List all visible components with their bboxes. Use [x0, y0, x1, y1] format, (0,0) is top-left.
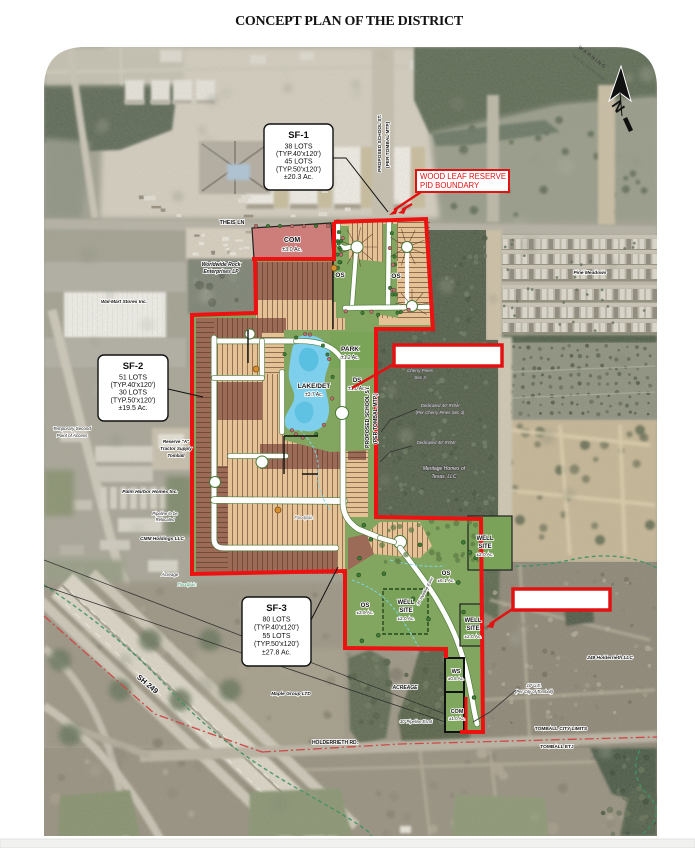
svg-text:±1.0 Ac.: ±1.0 Ac. [449, 716, 465, 721]
svg-text:Tomball: Tomball [167, 453, 185, 458]
svg-text:Floodplain: Floodplain [294, 515, 314, 520]
svg-text:SF-2: SF-2 [123, 361, 144, 372]
svg-text:(PER TOMBAL MTP): (PER TOMBAL MTP) [385, 121, 391, 168]
svg-text:(PER TOMBAL MTP.): (PER TOMBAL MTP.) [373, 393, 379, 444]
svg-text:10' U.E.: 10' U.E. [527, 683, 542, 688]
svg-text:WOOD LEAF RESERVE: WOOD LEAF RESERVE [420, 172, 506, 181]
svg-text:(TYP.50'x120'): (TYP.50'x120') [276, 166, 321, 173]
svg-text:Reserve "A": Reserve "A" [163, 439, 190, 444]
svg-text:Relocated: Relocated [156, 517, 176, 522]
svg-text:±2.0 Ac.: ±2.0 Ac. [476, 552, 493, 558]
svg-text:OS: OS [361, 603, 370, 609]
svg-text:OS: OS [442, 571, 451, 577]
svg-text:LAKE/DET: LAKE/DET [298, 383, 331, 390]
svg-text:SITE: SITE [478, 544, 491, 550]
svg-text:PROPOSED SCHOOL ST.: PROPOSED SCHOOL ST. [365, 386, 371, 448]
svg-text:WELL: WELL [398, 600, 415, 606]
svg-text:30 LOTS: 30 LOTS [119, 390, 147, 397]
svg-text:±3.9 Ac.: ±3.9 Ac. [356, 610, 373, 616]
svg-text:PARK: PARK [341, 346, 359, 353]
svg-text:COM: COM [284, 237, 301, 244]
svg-text:SITE: SITE [399, 608, 412, 614]
svg-text:(TYP.40'x120'): (TYP.40'x120') [254, 625, 299, 632]
svg-text:Tractor Supply: Tractor Supply [160, 446, 192, 451]
svg-text:±1.0 Ac.: ±1.0 Ac. [348, 386, 366, 392]
svg-text:ACREAGE: ACREAGE [391, 685, 418, 691]
svg-text:THEIS LN: THEIS LN [219, 220, 244, 226]
svg-text:±3.0 Ac.: ±3.0 Ac. [282, 247, 302, 253]
svg-text:OS: OS [335, 272, 345, 279]
svg-text:SITE: SITE [466, 626, 479, 632]
svg-text:Floodplain: Floodplain [177, 582, 197, 587]
svg-text:±2.0 Ac.: ±2.0 Ac. [397, 616, 414, 622]
svg-text:±2.0 Ac.: ±2.0 Ac. [464, 634, 481, 640]
svg-text:SF-3: SF-3 [266, 603, 287, 614]
svg-text:(TYP.40'x120'): (TYP.40'x120') [276, 151, 321, 158]
svg-text:45 LOTS: 45 LOTS [284, 159, 312, 166]
svg-text:CMM Holdings LLC: CMM Holdings LLC [140, 536, 184, 542]
svg-text:Pine Meadows: Pine Meadows [573, 270, 606, 276]
svg-text:Palm Harbor Homes Inc.: Palm Harbor Homes Inc. [122, 489, 177, 495]
svg-text:249 Holderrieth LLC: 249 Holderrieth LLC [586, 655, 633, 661]
svg-text:51 LOTS: 51 LOTS [119, 375, 147, 382]
svg-text:±3.7 Ac.: ±3.7 Ac. [305, 392, 323, 398]
svg-text:(TYP.40'x120'): (TYP.40'x120') [111, 382, 156, 389]
svg-text:(TYP.50'x120'): (TYP.50'x120') [254, 641, 299, 648]
svg-text:Worldwide Rock: Worldwide Rock [202, 262, 241, 268]
svg-text:±20.3 Ac.: ±20.3 Ac. [284, 174, 313, 181]
svg-text:PROPOSED SCHOOL ST.: PROPOSED SCHOOL ST. [377, 115, 383, 172]
svg-text:Acreage: Acreage [161, 572, 179, 577]
svg-text:WELL: WELL [477, 536, 494, 542]
svg-text:±1.2 Ac.: ±1.2 Ac. [341, 355, 359, 361]
svg-text:55 LOTS: 55 LOTS [262, 633, 290, 640]
svg-text:PID BOUNDARY: PID BOUNDARY [420, 181, 480, 190]
svg-text:Wal-Mart Stores Inc.: Wal-Mart Stores Inc. [101, 299, 147, 305]
svg-text:(TYP.50'x120'): (TYP.50'x120') [111, 397, 156, 404]
svg-text:±27.8 Ac.: ±27.8 Ac. [262, 649, 291, 656]
svg-text:38 LOTS: 38 LOTS [284, 144, 312, 151]
svg-text:(Per Cherry Pines Sec 3): (Per Cherry Pines Sec 3) [416, 410, 465, 415]
svg-text:Maple Group LTD: Maple Group LTD [271, 691, 311, 697]
svg-text:Meritage Homes of: Meritage Homes of [423, 466, 466, 472]
svg-text:Temporary Second: Temporary Second [53, 426, 91, 431]
svg-text:Texas, LLC: Texas, LLC [431, 474, 456, 480]
svg-text:80 LOTS: 80 LOTS [262, 617, 290, 624]
svg-text:Point of Access: Point of Access [57, 433, 89, 438]
svg-text:TOMBALL ETJ: TOMBALL ETJ [540, 744, 574, 750]
svg-text:Sec 3: Sec 3 [414, 375, 426, 380]
svg-text:SF-1: SF-1 [288, 130, 309, 141]
svg-text:30' Pipeline Esmt: 30' Pipeline Esmt [400, 719, 433, 724]
svg-text:HOLDERRIETH RD.: HOLDERRIETH RD. [312, 740, 359, 746]
svg-text:±6.1 Ac.: ±6.1 Ac. [437, 578, 454, 584]
svg-text:OS: OS [391, 273, 401, 280]
svg-text:Pipeline to be: Pipeline to be [152, 511, 178, 516]
svg-text:±19.5 Ac.: ±19.5 Ac. [118, 405, 147, 412]
svg-text:Dedicated 40' ROW: Dedicated 40' ROW [417, 440, 457, 445]
svg-text:Enterprises LP: Enterprises LP [203, 269, 239, 275]
svg-text:Dedicated 40' ROW: Dedicated 40' ROW [421, 403, 461, 408]
svg-text:Cherry Pines: Cherry Pines [407, 368, 434, 373]
svg-text:CONCEPT PLAN OF THE DISTRICT: CONCEPT PLAN OF THE DISTRICT [235, 14, 464, 29]
svg-text:±0.8 Ac.: ±0.8 Ac. [448, 676, 464, 681]
svg-text:WS: WS [452, 669, 461, 675]
svg-text:WELL: WELL [465, 618, 482, 624]
svg-text:(Per City of Tomball): (Per City of Tomball) [515, 689, 554, 694]
svg-text:COM: COM [451, 709, 464, 715]
svg-text:TOMBALL CITY LIMITS: TOMBALL CITY LIMITS [535, 726, 588, 732]
